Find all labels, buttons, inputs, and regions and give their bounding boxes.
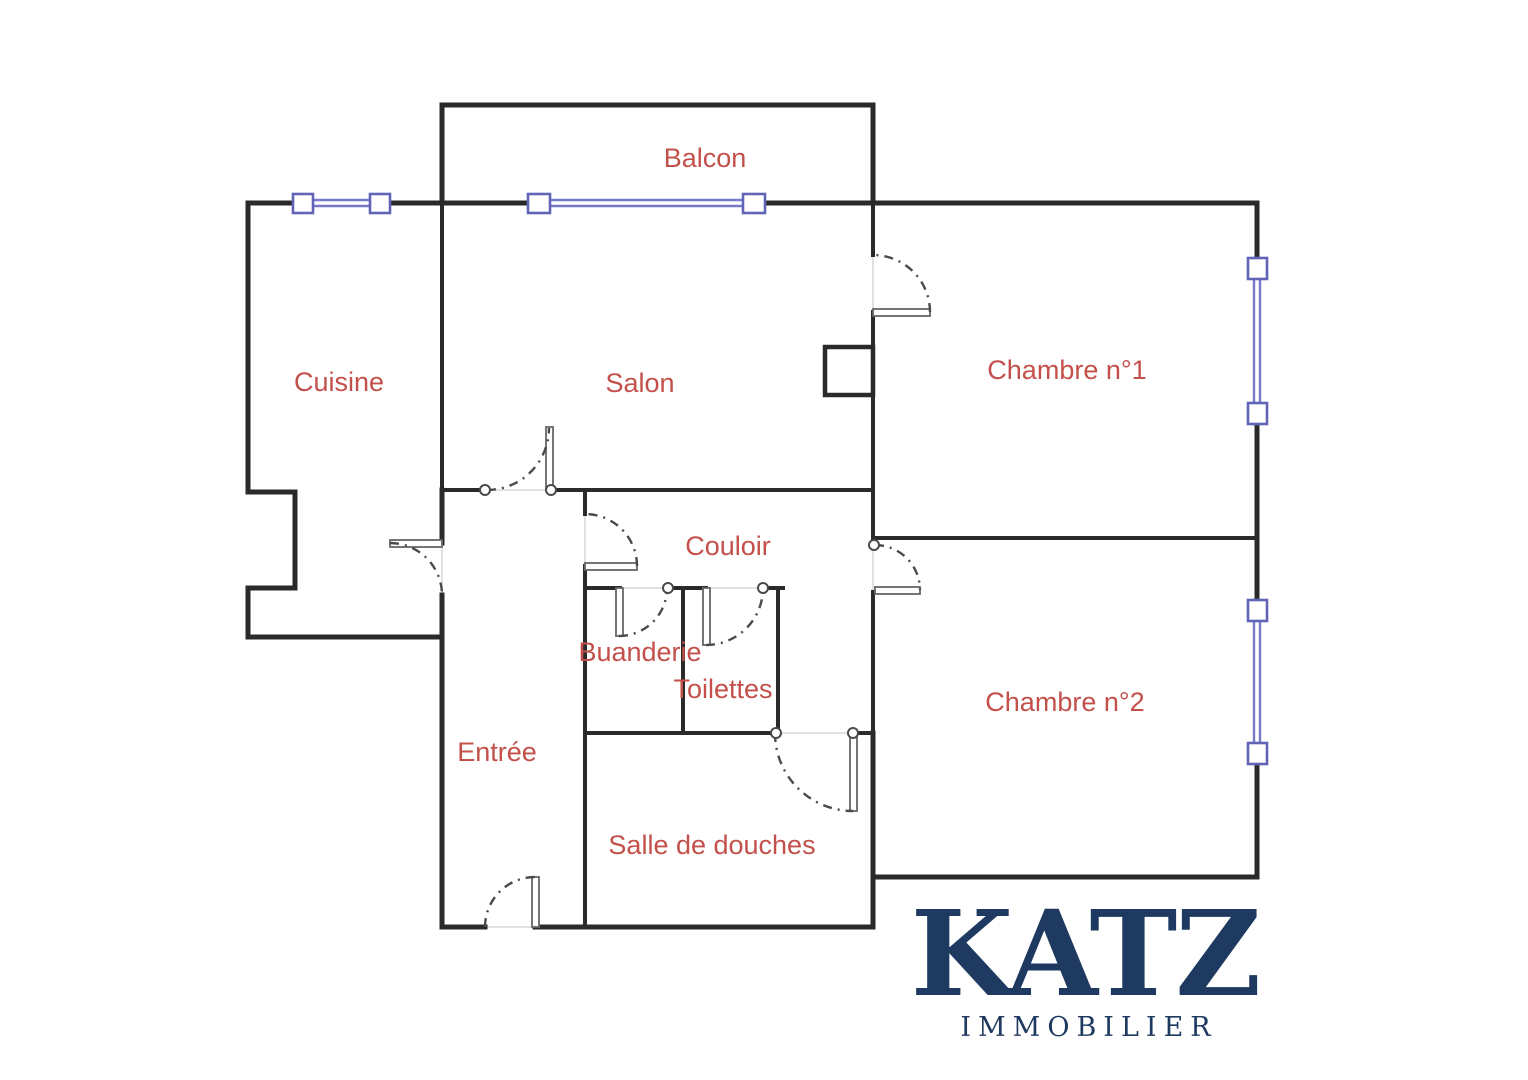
logo-brand-text: KATZ: [911, 884, 1260, 1023]
door-leaf: [703, 588, 710, 645]
door-entree-couloir: [585, 514, 637, 570]
agency-logo: KATZ IMMOBILIER: [911, 884, 1260, 1043]
window-cap: [1248, 403, 1267, 424]
room-label-entree: Entrée: [457, 737, 537, 767]
window-glazing: [550, 200, 743, 206]
door-swing-arc: [585, 514, 637, 566]
door-swing-arc: [390, 543, 442, 595]
logo-tagline-text: IMMOBILIER: [960, 1012, 1217, 1043]
door-salle-de-douches: [775, 733, 857, 811]
window-cuisine: [293, 194, 390, 213]
window-cap: [1248, 600, 1267, 621]
room-label-cuisine: Cuisine: [294, 367, 384, 397]
room-label-salon: Salon: [605, 368, 674, 398]
floor-plan-canvas: Balcon Cuisine Salon Chambre n°1 Chambre…: [0, 0, 1528, 1080]
hinge-point: [480, 485, 490, 495]
door-swing-arc: [875, 545, 920, 590]
door-leaf: [850, 733, 857, 811]
room-label-toilettes: Toilettes: [673, 674, 772, 704]
door-chambre1: [873, 255, 930, 316]
door-swing-arc: [873, 255, 930, 312]
window-cap: [1248, 743, 1267, 764]
window-chambre1: [1248, 258, 1267, 424]
door-swing-arc: [775, 733, 853, 811]
hinge-point: [771, 728, 781, 738]
floor-plan-page: Balcon Cuisine Salon Chambre n°1 Chambre…: [0, 0, 1528, 1080]
wall-balcony: [442, 105, 873, 203]
hinge-point: [758, 583, 768, 593]
door-chambre2: [875, 545, 920, 594]
window-cap: [370, 194, 390, 213]
hinge-point: [546, 485, 556, 495]
window-cap: [1248, 258, 1267, 279]
door-swing-arc: [619, 588, 667, 636]
window-cap: [528, 194, 550, 213]
window-glazing: [1254, 621, 1260, 743]
door-toilettes: [703, 588, 763, 645]
opening-guides: [442, 255, 873, 927]
hinge-point: [663, 583, 673, 593]
hinge-point: [869, 540, 879, 550]
window-cap: [743, 194, 765, 213]
door-cuisine: [390, 540, 442, 595]
door-leaf: [616, 588, 623, 636]
flue-box: [825, 347, 873, 395]
door-buanderie: [616, 588, 667, 636]
door-leaf: [873, 309, 930, 316]
room-label-couloir: Couloir: [685, 531, 771, 561]
room-label-chambre2: Chambre n°2: [985, 687, 1144, 717]
walls: [248, 105, 1257, 927]
window-glazing: [1254, 279, 1260, 403]
door-salon: [487, 427, 553, 490]
room-label-balcon: Balcon: [664, 143, 747, 173]
window-glazing: [313, 200, 370, 206]
hinge-point: [848, 728, 858, 738]
door-leaf: [546, 427, 553, 490]
door-swing-arc: [487, 428, 549, 490]
window-chambre2: [1248, 600, 1267, 764]
room-label-salle-de-douches: Salle de douches: [608, 830, 815, 860]
door-leaf: [532, 877, 539, 927]
door-swing-arc: [706, 588, 763, 645]
wall-exterior-left-and-notch: [248, 203, 442, 637]
window-salon: [528, 194, 765, 213]
door-swing-arc: [485, 877, 535, 927]
door-entree-front: [485, 877, 539, 927]
door-leaf: [875, 587, 920, 594]
window-cap: [293, 194, 313, 213]
room-label-chambre1: Chambre n°1: [987, 355, 1146, 385]
room-label-buanderie: Buanderie: [578, 637, 701, 667]
door-leaf: [585, 563, 637, 570]
room-labels: Balcon Cuisine Salon Chambre n°1 Chambre…: [294, 143, 1147, 860]
